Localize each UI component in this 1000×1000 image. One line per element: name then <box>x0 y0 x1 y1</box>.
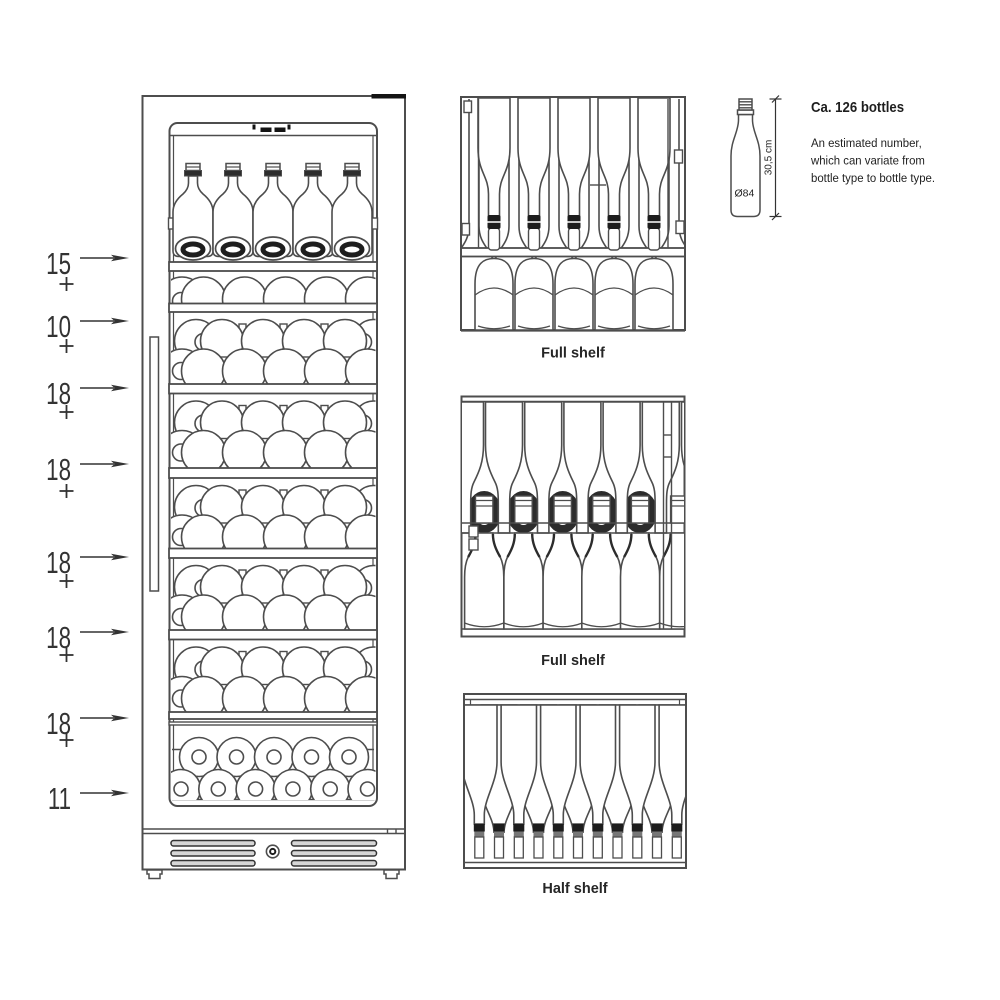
svg-text:11: 11 <box>48 782 71 816</box>
svg-text:Ø84: Ø84 <box>735 188 755 200</box>
svg-text:which can variate from: which can variate from <box>810 154 925 167</box>
svg-text:An estimated number,: An estimated number, <box>811 137 922 150</box>
svg-text:30,5 cm: 30,5 cm <box>764 140 775 176</box>
svg-text:Half shelf: Half shelf <box>542 881 607 897</box>
svg-text:10: 10 <box>46 310 71 344</box>
svg-text:bottle type to bottle type.: bottle type to bottle type. <box>811 172 935 185</box>
svg-text:Ca. 126 bottles: Ca. 126 bottles <box>811 98 904 115</box>
svg-text:18: 18 <box>46 453 71 487</box>
svg-text:15: 15 <box>46 247 71 281</box>
svg-text:Full shelf: Full shelf <box>541 653 605 669</box>
svg-text:Full shelf: Full shelf <box>541 346 605 362</box>
